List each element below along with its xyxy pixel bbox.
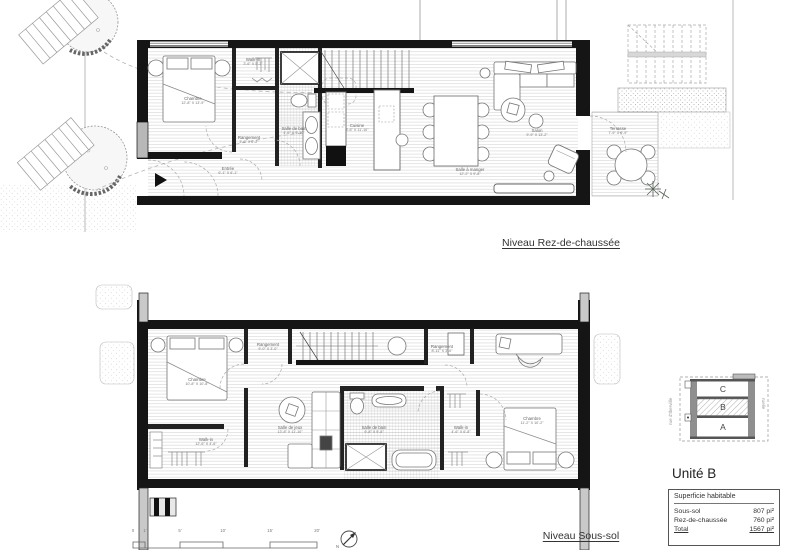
toilet [291, 94, 316, 107]
shower [346, 444, 386, 470]
room-label-rangement: Rangement3'-6" X 6'-2" [238, 135, 260, 145]
room-label-cuisine: Cuisine8'-6" X 11'-10" [345, 123, 368, 133]
area-row-rdc: Rez-de-chaussée 760 pi² [674, 516, 774, 525]
street-label-iberville: rue d'Iberville [668, 398, 673, 425]
scale-label-15: 15' [267, 528, 272, 533]
scale-label-10: 10' [220, 528, 225, 533]
keyplan-unit-a: A [720, 422, 726, 432]
room-label-entree: Entrée6'-1" X 6'-1" [218, 166, 237, 176]
area-row-sous-sol: Sous-sol 807 pi² [674, 507, 774, 516]
window-detail [150, 498, 176, 516]
architectural-sheet: Niveau Rez-de-chaussée Niveau Sous-sol C… [0, 0, 800, 550]
shower [281, 52, 319, 84]
room-label-chambre-ss: Chambre10'-8" X 10'-8" [185, 377, 208, 387]
area-table-header: Superficie habitable [674, 493, 774, 504]
room-label-salle-de-bain-ss: Salle de bain9'-8" X 9'-8" [362, 425, 387, 435]
area-row-total: Total 1567 pi² [674, 525, 774, 534]
toilet [350, 393, 364, 414]
room-label-walkin2-ss: Walk-in4'-6" X 6'-8" [451, 425, 470, 435]
room-label-rangement-ss: Rangement9'-0" X 3'-0" [257, 342, 279, 352]
scale-label-1: 1' [143, 528, 146, 533]
north-arrow-icon [341, 531, 357, 547]
room-label-salle-de-bain: Salle de bain4'-6" X 9'-10" [281, 126, 307, 136]
scale-label-0: 0 [132, 528, 134, 533]
ground-floor-plan [137, 25, 730, 205]
ground-floor-title: Niveau Rez-de-chaussée [502, 237, 620, 249]
room-label-salle-de-jeux: Salle de jeux13'-8" X 11'-10" [277, 425, 302, 435]
tv-console [494, 184, 574, 193]
keyplan-unit-b: B [720, 402, 726, 412]
street-label-ruelle: ruelle [761, 398, 766, 409]
north-label: N [336, 544, 339, 549]
unit-title: Unité B [672, 466, 716, 481]
room-label-walkin-ss: Walk-in12'-6" X 4'-6" [195, 437, 216, 447]
room-label-rangement2-ss: Rangement8'-11" X 3'-0" [431, 344, 453, 354]
area-table: Superficie habitable Sous-sol 807 pi² Re… [668, 489, 780, 546]
keyplan-unit-c: C [720, 384, 726, 394]
scale-bar [133, 542, 317, 548]
pouf [388, 337, 406, 355]
scale-label-20: 20' [314, 528, 319, 533]
dining-table [423, 96, 489, 166]
scale-label-5: 5' [178, 528, 181, 533]
room-label-salon: Salon9'-9" X 13'-2" [526, 128, 547, 138]
kitchen-counter [326, 92, 346, 166]
room-label-chambre2-ss: Chambre11'-2" X 10'-2" [520, 416, 543, 426]
room-label-salle-a-manger: Salle à manger12'-2" X 9'-8" [456, 167, 485, 177]
room-label-chambre: Chambre12'-8" X 13'-9" [181, 96, 204, 106]
basement-title: Niveau Sous-sol [543, 530, 619, 542]
game-table [279, 397, 305, 423]
room-label-walkin: Walk-in3'-6" X 5'-2" [243, 57, 262, 67]
room-label-terrasse: Terrasse7'-9" X 9'-9" [608, 126, 627, 136]
